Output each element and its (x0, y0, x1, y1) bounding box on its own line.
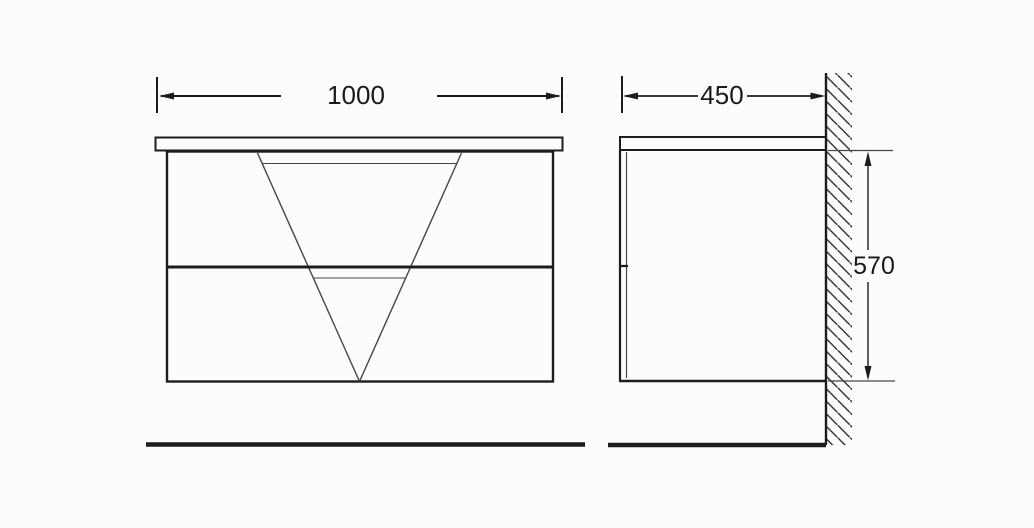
wall-hatch (827, 73, 852, 445)
arrowhead-left-icon (623, 93, 638, 100)
dimension-label-side-height: 570 (853, 252, 895, 280)
dimension-label-front-width: 1000 (327, 80, 385, 110)
arrowhead-up-icon (865, 152, 872, 167)
front-view: 1000 (146, 77, 585, 445)
arrowhead-left-icon (159, 93, 174, 100)
dimension-side-depth: 450 (622, 76, 826, 113)
dimension-label-side-depth: 450 (700, 80, 743, 110)
wall (826, 73, 852, 445)
arrowhead-down-icon (865, 366, 872, 381)
side-countertop (620, 137, 826, 150)
arrowhead-right-icon (546, 93, 561, 100)
side-view: 450 (608, 73, 895, 445)
front-countertop (156, 138, 563, 151)
technical-drawing-canvas: 1000 (0, 0, 1034, 528)
vanity-cabinet-dimension-drawing: 1000 (0, 0, 1034, 528)
side-cabinet-body (619, 150, 826, 381)
arrowhead-right-icon (811, 93, 826, 100)
dimension-front-width: 1000 (157, 77, 562, 113)
